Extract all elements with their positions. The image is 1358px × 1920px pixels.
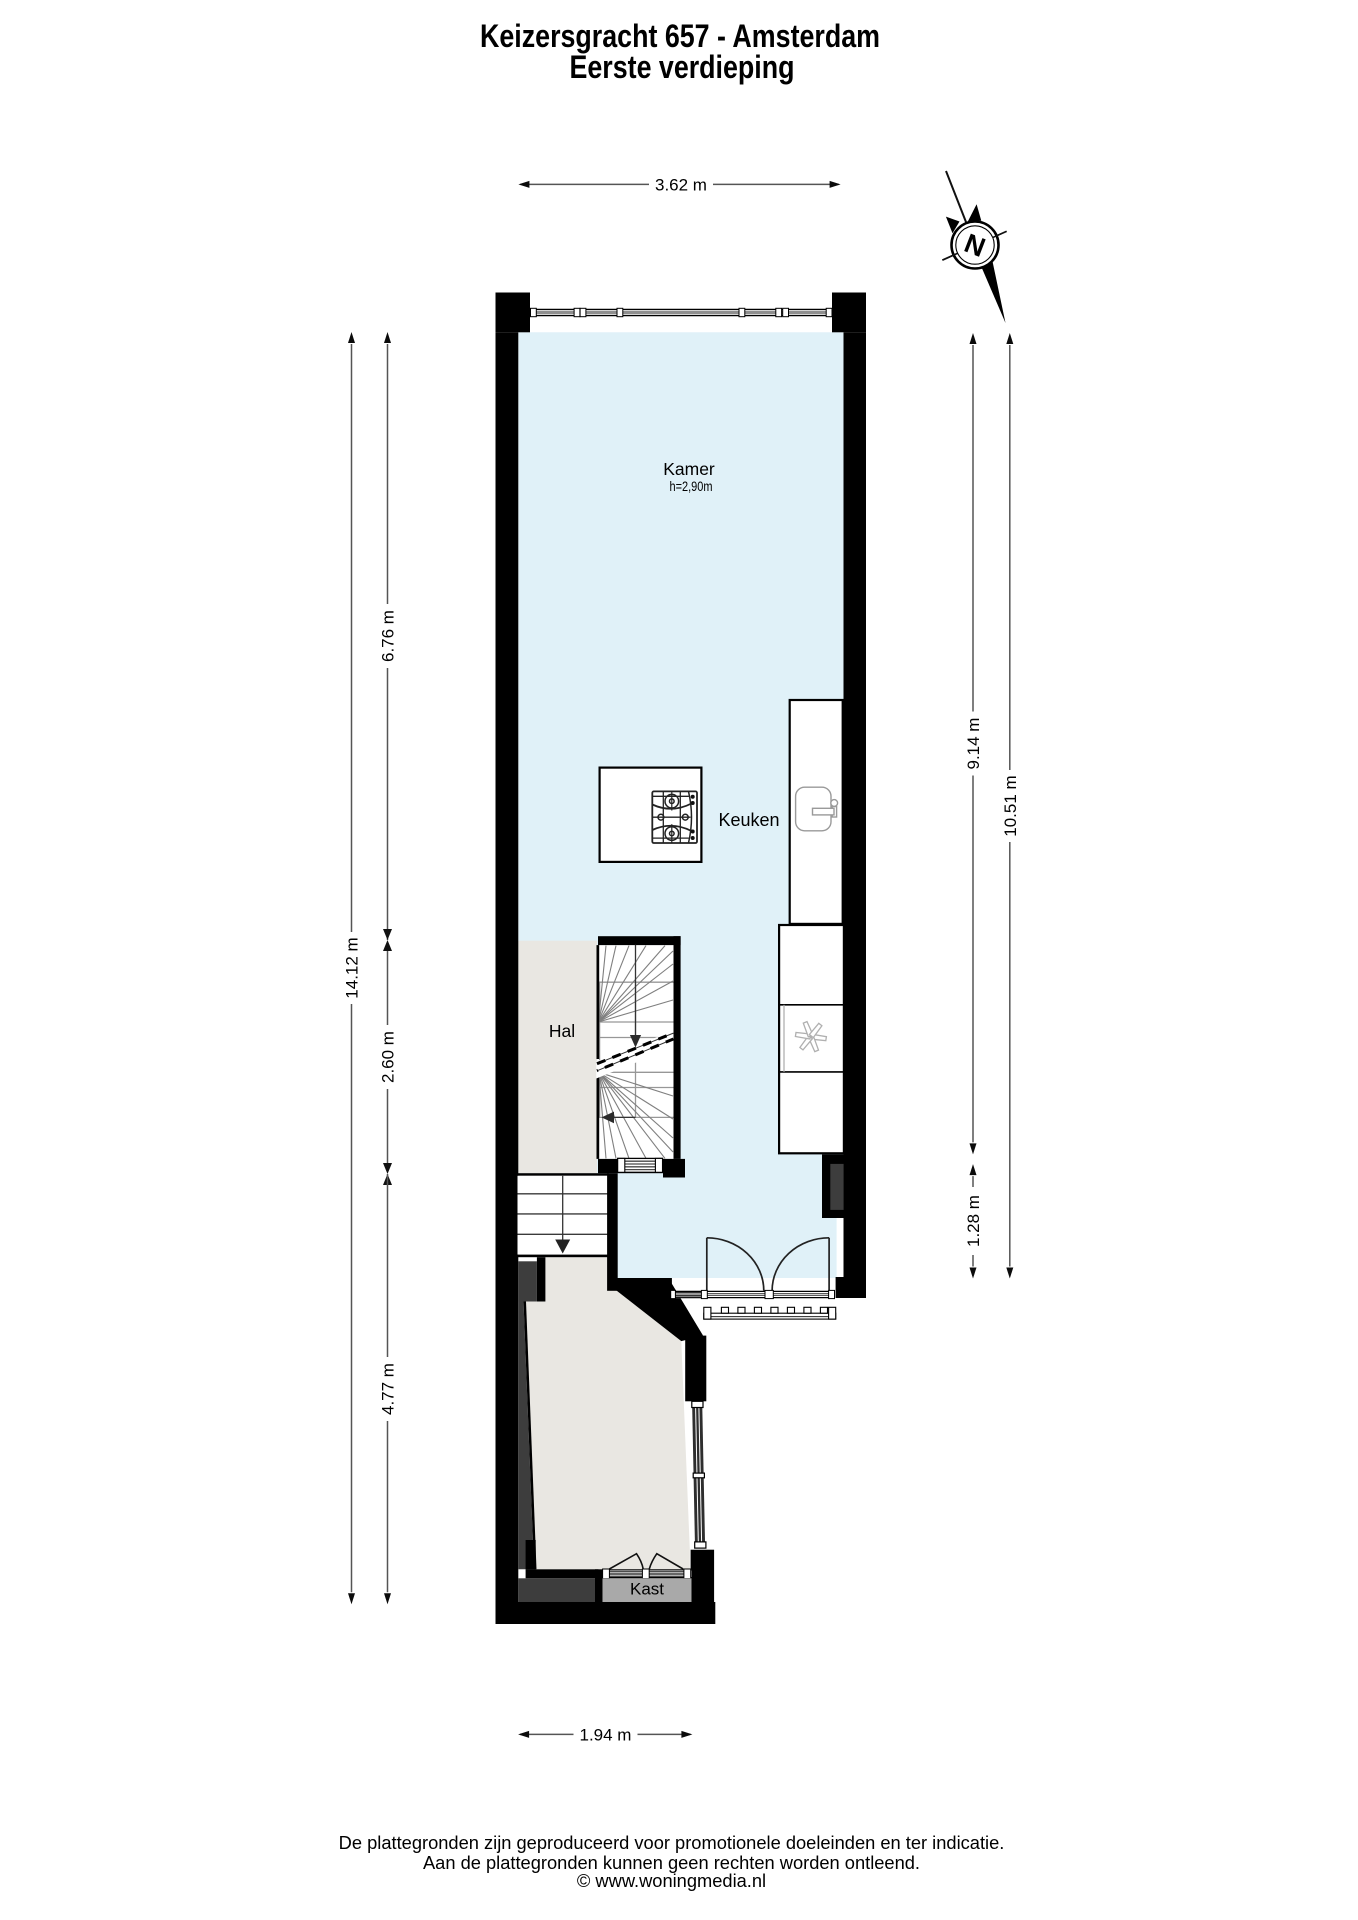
svg-text:Eerste verdieping: Eerste verdieping: [570, 49, 795, 85]
svg-text:9.14 m: 9.14 m: [964, 718, 983, 770]
svg-text:© www.woningmedia.nl: © www.woningmedia.nl: [577, 1870, 766, 1891]
svg-text:3.62 m: 3.62 m: [655, 175, 707, 194]
svg-text:Kast: Kast: [630, 1580, 664, 1599]
svg-text:6.76 m: 6.76 m: [379, 610, 398, 662]
svg-text:1.94 m: 1.94 m: [580, 1725, 632, 1744]
svg-text:4.77 m: 4.77 m: [379, 1363, 398, 1415]
svg-text:10.51 m: 10.51 m: [1001, 775, 1020, 836]
svg-text:Kamer: Kamer: [663, 459, 715, 479]
svg-text:1.28 m: 1.28 m: [964, 1195, 983, 1247]
svg-text:De plattegronden zijn geproduc: De plattegronden zijn geproduceerd voor …: [339, 1832, 1005, 1853]
svg-text:Hal: Hal: [549, 1021, 575, 1041]
svg-text:Keuken: Keuken: [718, 810, 779, 830]
svg-text:2.60 m: 2.60 m: [379, 1031, 398, 1083]
svg-text:h=2,90m: h=2,90m: [670, 479, 713, 494]
svg-text:14.12 m: 14.12 m: [343, 937, 362, 998]
